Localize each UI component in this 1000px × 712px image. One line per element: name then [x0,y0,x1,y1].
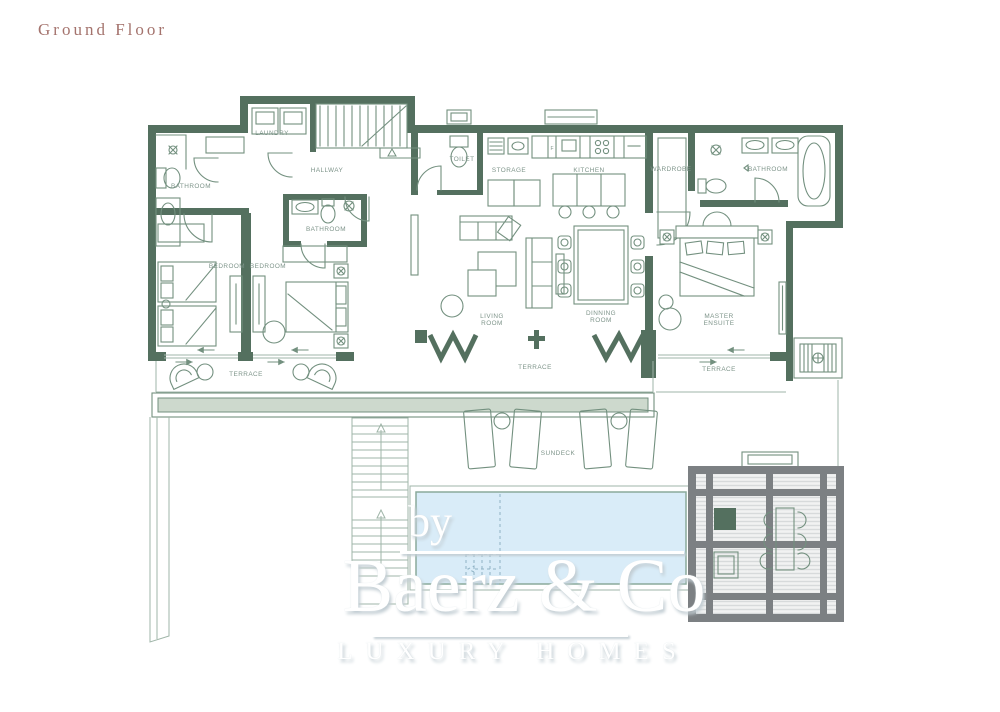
room-bedroom-right: BEDROOM [250,246,348,348]
label-storage: STORAGE [492,167,526,174]
label-wardrobe: WARDROBE [651,166,692,173]
label-master-line2: ENSUITE [704,320,735,327]
staircase-bottom [352,418,408,604]
pool [410,486,692,590]
label-laundry: LAUNDRY [255,130,289,137]
watermark-rule-top [400,551,684,554]
room-bathroom-left: BATHROOM [156,135,244,246]
label-bedroom-left: BEDROOM [209,263,245,270]
watermark-rule-bottom [372,634,628,637]
exterior-stair-right [794,338,842,378]
room-living: LIVING ROOM [411,215,564,327]
label-dining-line2: ROOM [590,317,612,324]
floorplan-drawing: LAUNDRY HALLWAY BATHROOM [0,0,1000,712]
label-living-line2: ROOM [481,320,503,327]
label-terrace-middle: TERRACE [518,364,552,371]
label-terrace-right: TERRACE [702,366,736,373]
label-living-line1: LIVING [480,313,504,320]
label-dining-line1: DINNING [586,310,616,317]
label-bathroom-master: BATHROOM [748,166,788,173]
label-sundeck: SUNDECK [541,450,576,457]
staircase-top [316,104,420,158]
room-bedroom-left: BEDROOM [158,224,245,346]
sundeck: SUNDECK [464,409,658,469]
label-bathroom-middle: BATHROOM [306,226,346,233]
room-toilet: TOILET [447,110,474,167]
room-bathroom-master: BATHROOM [698,136,830,206]
room-laundry: LAUNDRY [252,108,306,137]
label-master-line1: MASTER [704,313,733,320]
room-wardrobe: WARDROBE [651,138,692,238]
label-fridge: F [550,146,553,152]
room-master-ensuite: MASTER ENSUITE [659,212,786,334]
floorplan-page: Ground Floor [0,0,1000,712]
label-hallway: HALLWAY [311,167,344,174]
room-bathroom-middle: BATHROOM [292,199,354,233]
garden-path [150,417,169,642]
room-dining: DINNING ROOM [558,226,644,324]
label-toilet: TOILET [450,156,475,163]
pergola [688,380,844,622]
label-terrace-left: TERRACE [229,371,263,378]
bifold-doors [430,330,643,358]
planter [152,393,654,417]
label-bedroom-right: BEDROOM [250,263,286,270]
label-bathroom-left: BATHROOM [171,183,211,190]
label-kitchen: KITCHEN [573,167,604,174]
